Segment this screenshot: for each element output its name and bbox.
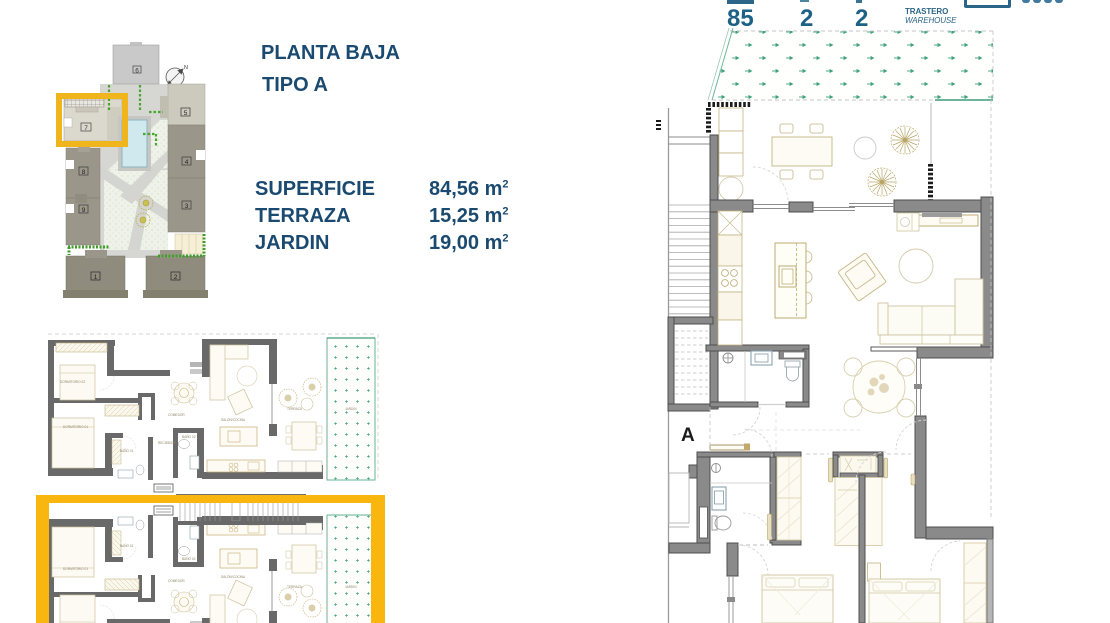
- svg-text:A: A: [681, 425, 695, 446]
- svg-text:TERRAZA: TERRAZA: [287, 585, 303, 589]
- svg-text:BAÑO 01: BAÑO 01: [120, 543, 134, 548]
- svg-text:7: 7: [84, 125, 88, 132]
- svg-text:SALÓN/COCINA: SALÓN/COCINA: [221, 417, 246, 422]
- svg-text:9: 9: [82, 207, 86, 214]
- svg-text:DORMITORIO 01: DORMITORIO 01: [63, 567, 88, 571]
- svg-text:8: 8: [82, 169, 86, 176]
- svg-text:N: N: [184, 65, 188, 71]
- svg-text:COMEDOR: COMEDOR: [168, 413, 185, 417]
- svg-text:1: 1: [94, 274, 98, 281]
- svg-text:RECIBIDOR: RECIBIDOR: [158, 441, 176, 445]
- svg-text:BAÑO 02: BAÑO 02: [182, 434, 196, 439]
- svg-text:4: 4: [185, 159, 189, 166]
- svg-text:COMEDOR: COMEDOR: [168, 579, 185, 583]
- svg-text:5: 5: [184, 110, 188, 117]
- svg-text:JARDIN: JARDIN: [345, 407, 357, 411]
- svg-text:JARDIN: JARDIN: [345, 585, 357, 589]
- svg-text:6: 6: [135, 68, 139, 75]
- svg-text:2: 2: [174, 274, 178, 281]
- svg-text:BAÑO 01: BAÑO 01: [120, 448, 134, 453]
- svg-text:DORMITORIO 02: DORMITORIO 02: [60, 380, 85, 384]
- svg-text:TERRAZA: TERRAZA: [287, 407, 303, 411]
- svg-text:BAÑO 02: BAÑO 02: [182, 556, 196, 561]
- svg-text:3: 3: [185, 203, 189, 210]
- svg-text:SALÓN/COCINA: SALÓN/COCINA: [221, 574, 246, 579]
- svg-text:DORMITORIO 01: DORMITORIO 01: [63, 425, 88, 429]
